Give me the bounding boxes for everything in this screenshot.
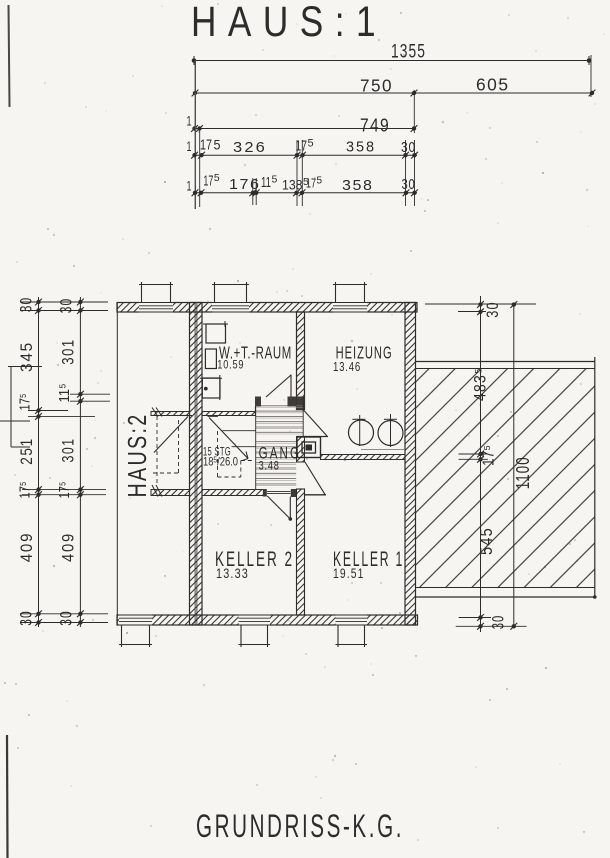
svg-text:409: 409	[59, 532, 78, 562]
svg-text:17: 17	[296, 139, 308, 155]
svg-text:409: 409	[17, 532, 36, 563]
svg-text:HAUS:1: HAUS:1	[191, 0, 387, 46]
svg-text:358: 358	[346, 139, 376, 156]
svg-text:13.46: 13.46	[333, 360, 361, 374]
svg-text:251: 251	[17, 437, 36, 465]
svg-text:HAUS:2: HAUS:2	[122, 413, 152, 498]
svg-text:GRUNDRISS-K.G.: GRUNDRISS-K.G.	[196, 808, 404, 844]
svg-text:483⁵: 483⁵	[471, 367, 490, 401]
svg-text:17: 17	[306, 176, 316, 191]
svg-text:30: 30	[58, 298, 76, 314]
svg-text:326: 326	[233, 139, 267, 156]
svg-text:1100: 1100	[513, 456, 533, 489]
svg-text:358: 358	[342, 177, 374, 194]
svg-text:30: 30	[483, 301, 502, 318]
svg-text:1: 1	[187, 138, 192, 154]
svg-text:750: 750	[360, 76, 393, 96]
svg-text:301: 301	[59, 438, 78, 463]
svg-text:17⁵: 17⁵	[17, 394, 34, 411]
svg-text:3.48: 3.48	[259, 459, 280, 472]
svg-text:13.33: 13.33	[216, 565, 249, 581]
svg-text:30: 30	[18, 610, 36, 626]
svg-text:345: 345	[17, 341, 36, 372]
svg-text:30: 30	[489, 615, 508, 630]
svg-text:10.59: 10.59	[217, 360, 244, 372]
svg-text:176: 176	[229, 176, 261, 193]
svg-text:1355: 1355	[391, 42, 426, 63]
svg-text:5: 5	[308, 138, 314, 150]
svg-text:11⁵: 11⁵	[56, 384, 73, 403]
svg-text:1: 1	[187, 113, 192, 129]
svg-text:138: 138	[282, 177, 303, 193]
svg-text:1: 1	[187, 178, 192, 194]
svg-text:17: 17	[200, 138, 212, 154]
svg-text:17⁵: 17⁵	[481, 445, 498, 466]
svg-text:545: 545	[476, 527, 496, 555]
svg-text:30: 30	[401, 139, 416, 156]
svg-text:17: 17	[203, 174, 213, 190]
svg-text:5: 5	[214, 137, 221, 153]
svg-text:19.51: 19.51	[333, 565, 365, 581]
svg-text:30: 30	[58, 610, 76, 626]
svg-text:605: 605	[476, 75, 510, 95]
svg-text:5: 5	[214, 172, 220, 184]
svg-text:30: 30	[402, 176, 416, 193]
svg-text:11: 11	[261, 175, 271, 191]
svg-text:749: 749	[360, 116, 390, 136]
svg-text:5: 5	[317, 176, 323, 187]
svg-text:17⁵: 17⁵	[17, 482, 34, 499]
svg-text:17⁵: 17⁵	[56, 482, 73, 499]
svg-text:301: 301	[59, 338, 78, 365]
svg-text:5: 5	[272, 174, 278, 186]
svg-text:30: 30	[18, 297, 36, 313]
svg-text:185/26.0: 185/26.0	[203, 454, 238, 468]
